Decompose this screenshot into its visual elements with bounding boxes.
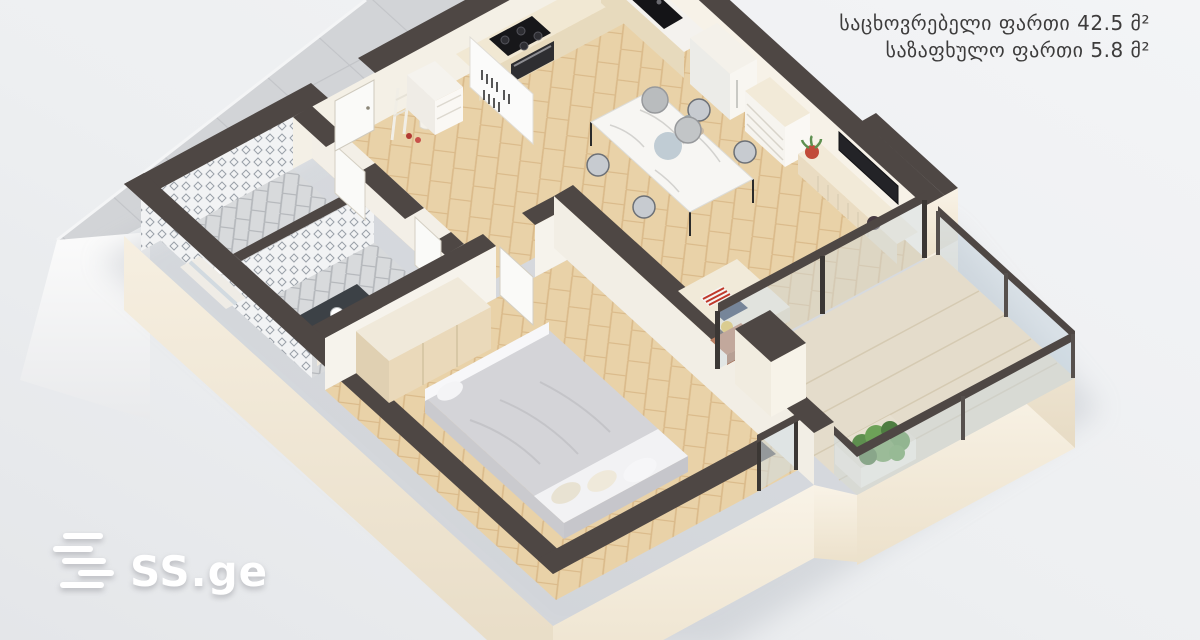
floor-plan-canvas: საცხოვრებელი ფართი 42.5 მ² საზაფხულო ფარ… — [0, 0, 1200, 640]
summer-area-text: საზაფხულო ფართი 5.8 მ² — [886, 38, 1150, 62]
listing-render: საცხოვრებელი ფართი 42.5 მ² საზაფხულო ფარ… — [0, 0, 1200, 640]
living-area-text: საცხოვრებელი ფართი 42.5 მ² — [839, 11, 1150, 35]
ss-logo-text: SS.ge — [130, 547, 268, 596]
